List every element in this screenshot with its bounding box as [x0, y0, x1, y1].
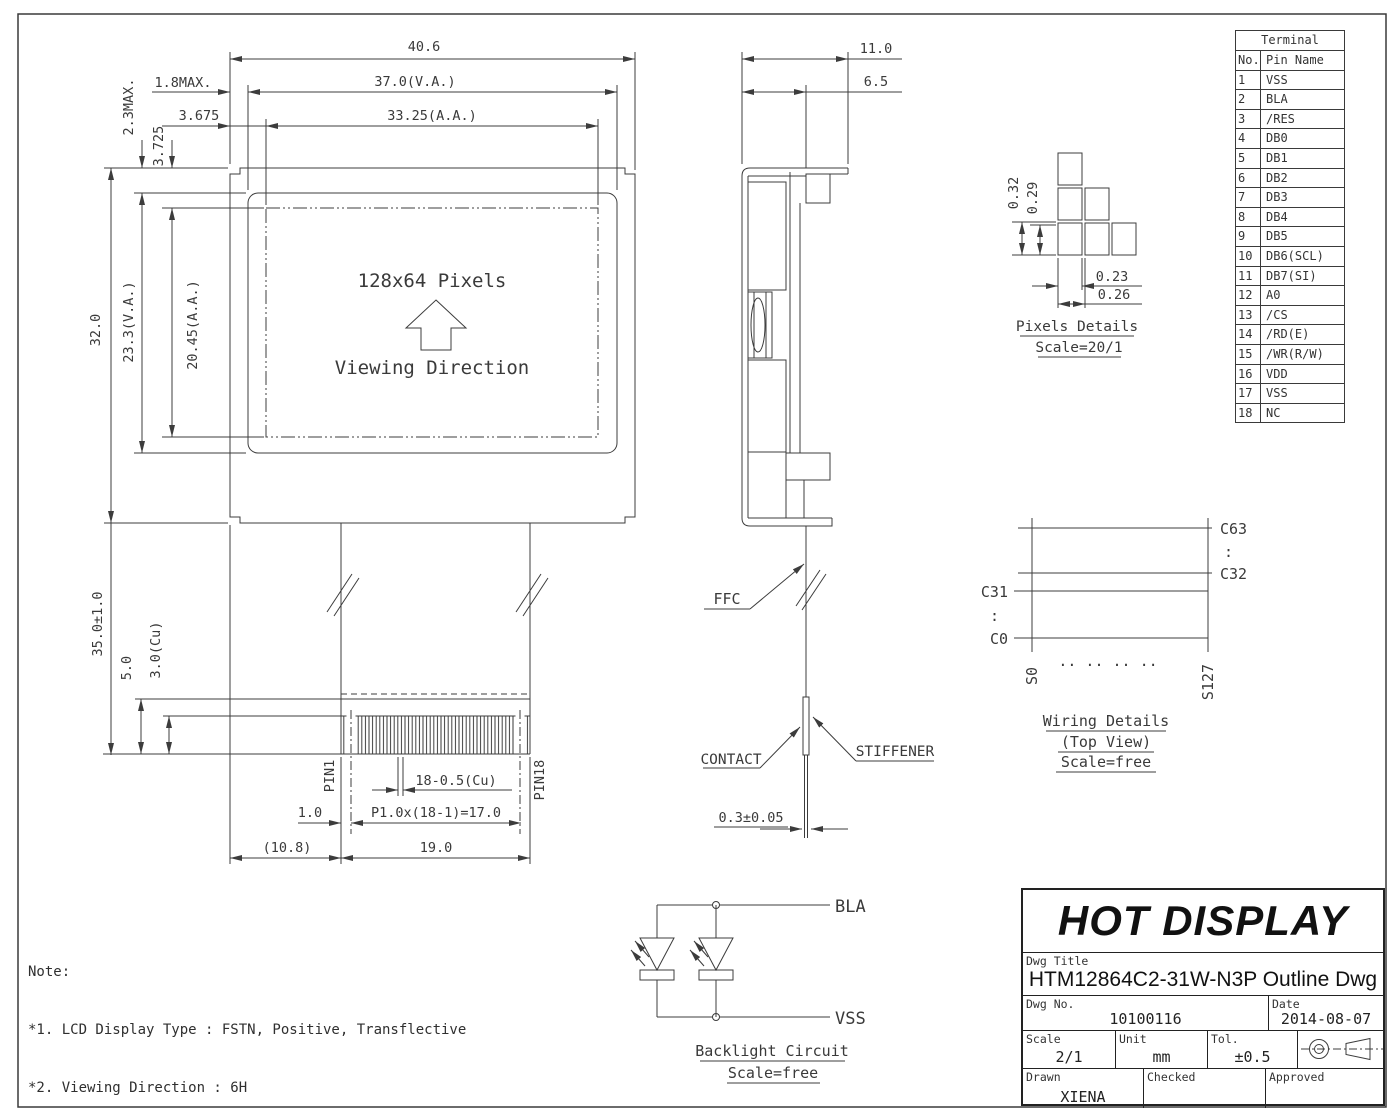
signature-row: Drawn XIENA Checked Approved [1023, 1068, 1383, 1108]
table-row: 2BLA [1236, 89, 1344, 109]
dim-tail-offset: (10.8) [263, 840, 312, 856]
dim-height-va: 23.3(V.A.) [121, 281, 137, 362]
dim-pixel-pitch-v: 0.32 [1006, 177, 1022, 210]
table-row: 3/RES [1236, 109, 1344, 129]
dim-tail-copper: 3.0(Cu) [148, 622, 164, 679]
table-row: 9DB5 [1236, 226, 1344, 246]
table-row: 17VSS [1236, 383, 1344, 403]
table-row: 15/WR(R/W) [1236, 344, 1344, 364]
led2-symbol [699, 938, 733, 970]
table-row: 1VSS [1236, 70, 1344, 90]
dim-pixel-pitch-h: 0.26 [1098, 287, 1131, 303]
pixels-details: 0.32 0.29 0.23 0.26 Pixels Details Scale… [1006, 153, 1142, 357]
dwg-title-label: Dwg Title [1026, 954, 1088, 968]
wiring-colon-left: : [990, 607, 999, 625]
table-row: 8DB4 [1236, 207, 1344, 227]
table-row: 6DB2 [1236, 168, 1344, 188]
dim-offset-aa-top: 3.725 [151, 126, 167, 167]
dim-height-aa: 20.45(A.A.) [185, 280, 201, 369]
module-outline [230, 168, 635, 523]
terminal-table: Terminal No. Pin Name 1VSS 2BLA 3/RES 4D… [1235, 30, 1345, 423]
dwg-no-cell: Dwg No. 10100116 [1023, 996, 1268, 1030]
dim-pixel-size-h: 0.23 [1096, 269, 1129, 285]
company-name: HOT DISPLAY [1023, 890, 1383, 952]
dim-offset-aa-left: 3.675 [179, 108, 220, 124]
wiring-c63-label: C63 [1220, 520, 1247, 538]
led1-symbol [640, 938, 674, 970]
outline-drawing-sheet: 128x64 Pixels Viewing Direction 40.6 37.… [0, 0, 1400, 1120]
backlight-title: Backlight Circuit [695, 1042, 849, 1060]
backlight-circuit: BLA VSS Backlight Circuit Scale=free [631, 897, 866, 1083]
backlight-anode-label: BLA [835, 897, 866, 917]
viewing-direction-arrow [406, 300, 466, 350]
ffc-label: FFC [713, 590, 740, 608]
drawn-cell: Drawn XIENA [1023, 1069, 1143, 1108]
terminal-table-title: Terminal [1236, 31, 1344, 50]
date-cell: Date 2014-08-07 [1268, 996, 1383, 1030]
notes-block: Note: *1. LCD Display Type : FSTN, Posit… [28, 924, 466, 1120]
terminal-table-header: No. Pin Name [1236, 50, 1344, 70]
dim-pin-pitch: P1.0x(18-1)=17.0 [371, 805, 501, 821]
dim-depth-glass: 6.5 [864, 74, 888, 90]
approved-cell: Approved [1265, 1069, 1383, 1108]
unit-value: mm [1116, 1048, 1207, 1066]
backlight-cathode-label: VSS [835, 1009, 866, 1029]
title-block: HOT DISPLAY Dwg Title HTM12864C2-31W-N3P… [1021, 888, 1385, 1106]
dim-pin-width: 18-0.5(Cu) [415, 773, 496, 789]
pixels-details-scale: Scale=20/1 [1035, 340, 1122, 356]
dim-margin-top: 2.3MAX. [121, 79, 137, 136]
dim-width-va: 37.0(V.A.) [374, 74, 455, 90]
dwg-no-value: 10100116 [1023, 1010, 1268, 1028]
wiring-c31-label: C31 [981, 583, 1008, 601]
front-view: 128x64 Pixels Viewing Direction 40.6 37.… [88, 39, 635, 864]
dim-ffc-thickness: 0.3±0.05 [718, 810, 783, 826]
wiring-details-title: Wiring Details [1043, 712, 1169, 730]
col-pin-header: Pin Name [1261, 51, 1344, 70]
dim-pixel-size-v: 0.29 [1025, 182, 1041, 215]
wiring-details-subtitle: (Top View) [1061, 733, 1151, 751]
wiring-s0-label: S0 [1023, 667, 1041, 685]
scale-cell: Scale 2/1 [1023, 1031, 1115, 1068]
dim-pin-edge: 1.0 [298, 805, 322, 821]
side-view: 11.0 6.5 FFC [700, 41, 934, 838]
projection-symbol-icon [1298, 1031, 1386, 1067]
wiring-details: C63 : C32 C31 : C0 S0 S127 .. .. .. .. W… [981, 518, 1247, 772]
table-row: 5DB1 [1236, 148, 1344, 168]
scale-value: 2/1 [1023, 1048, 1115, 1066]
dim-tail-exposed: 5.0 [119, 656, 135, 680]
projection-cell [1297, 1031, 1383, 1068]
note-item: *2. Viewing Direction : 6H [28, 1079, 466, 1098]
viewing-area-bezel [248, 193, 617, 453]
viewing-direction-label: Viewing Direction [335, 357, 529, 379]
table-row: 16VDD [1236, 364, 1344, 384]
unit-cell: Unit mm [1115, 1031, 1207, 1068]
table-row: 14/RD(E) [1236, 324, 1344, 344]
wiring-colon-right: : [1224, 543, 1233, 561]
note-item: *1. LCD Display Type : FSTN, Positive, T… [28, 1021, 466, 1040]
dim-width-aa: 33.25(A.A.) [387, 108, 476, 124]
dwg-title-row: Dwg Title HTM12864C2-31W-N3P Outline Dwg [1023, 952, 1383, 995]
dim-width-total: 40.6 [408, 39, 441, 55]
table-row: 11DB7(SI) [1236, 266, 1344, 286]
stiffener-label: STIFFENER [856, 744, 935, 760]
wiring-c0-label: C0 [990, 630, 1008, 648]
pixels-details-title: Pixels Details [1016, 319, 1138, 335]
pin1-label: PIN1 [322, 760, 338, 793]
tol-value: ±0.5 [1208, 1048, 1297, 1066]
table-row: 10DB6(SCL) [1236, 246, 1344, 266]
scale-row: Scale 2/1 Unit mm Tol. ±0.5 [1023, 1030, 1383, 1068]
table-row: 4DB0 [1236, 128, 1344, 148]
screen-pixels-label: 128x64 Pixels [358, 270, 507, 292]
dim-tail-length: 35.0±1.0 [90, 591, 106, 656]
tol-cell: Tol. ±0.5 [1207, 1031, 1297, 1068]
notes-heading: Note: [28, 963, 466, 982]
dwg-title-value: HTM12864C2-31W-N3P Outline Dwg [1023, 968, 1383, 992]
table-row: 12A0 [1236, 285, 1344, 305]
table-row: 13/CS [1236, 305, 1344, 325]
dwg-no-row: Dwg No. 10100116 Date 2014-08-07 [1023, 995, 1383, 1030]
table-row: 7DB3 [1236, 187, 1344, 207]
drawn-value: XIENA [1023, 1088, 1143, 1106]
date-value: 2014-08-07 [1269, 1010, 1383, 1028]
dim-height-total: 32.0 [88, 314, 104, 347]
wiring-details-scale: Scale=free [1061, 753, 1151, 771]
table-row: 18NC [1236, 403, 1344, 423]
dim-tail-width: 19.0 [420, 840, 453, 856]
checked-cell: Checked [1143, 1069, 1265, 1108]
dim-margin-left: 1.8MAX. [155, 75, 212, 91]
backlight-scale: Scale=free [728, 1064, 818, 1082]
wiring-dots: .. .. .. .. [1058, 652, 1157, 670]
contact-label: CONTACT [700, 752, 761, 768]
col-no-header: No. [1236, 51, 1261, 70]
pin18-label: PIN18 [532, 760, 548, 801]
wiring-c32-label: C32 [1220, 565, 1247, 583]
ffc-contact-hatch [342, 716, 530, 754]
wiring-s127-label: S127 [1199, 664, 1217, 700]
dim-depth-total: 11.0 [860, 41, 893, 57]
active-area-border [266, 208, 598, 437]
